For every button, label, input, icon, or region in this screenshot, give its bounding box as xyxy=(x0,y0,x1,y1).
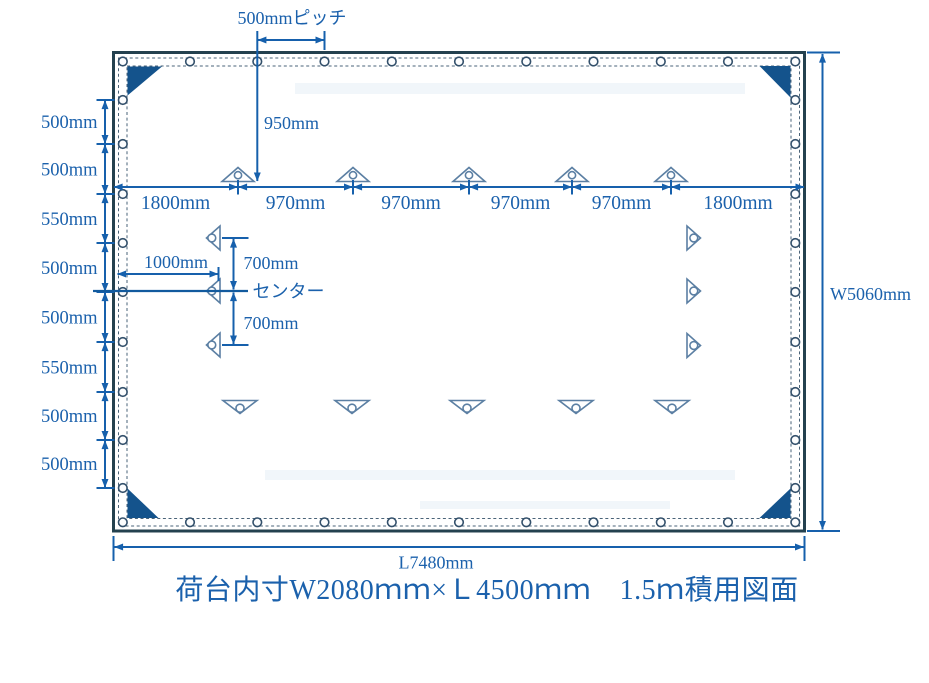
left-chain-label-2: 500mm xyxy=(41,161,98,181)
grommet xyxy=(119,140,128,149)
truck-tarp-drawing-page: 500mm 500mm 550mm 500mm 500mm 550mm 500m… xyxy=(0,0,929,683)
truck-tarp-diagram: 500mm 500mm 550mm 500mm 500mm 550mm 500m… xyxy=(0,0,929,683)
grommet xyxy=(791,338,800,347)
grommet xyxy=(320,518,329,527)
grommet xyxy=(791,518,800,527)
grommet xyxy=(724,57,733,66)
right-loop-eyelet xyxy=(690,342,698,350)
left-chain-label-3: 550mm xyxy=(41,210,98,230)
tent-loop-eyelet xyxy=(568,172,575,179)
grommet xyxy=(119,338,128,347)
top-chain-label-5: 970mm xyxy=(592,193,652,214)
top-drop-label: 950mm xyxy=(264,113,319,133)
grommet xyxy=(119,388,128,397)
left-dimension-chain: 500mm 500mm 550mm 500mm 500mm 550mm 500m… xyxy=(41,100,115,488)
overall-length-label: L7480mm xyxy=(399,553,474,573)
grommet xyxy=(791,484,800,493)
grommet xyxy=(791,96,800,105)
top-chain-label-4: 970mm xyxy=(491,193,551,214)
grommet xyxy=(522,518,531,527)
left-loop-eyelet xyxy=(208,341,216,349)
grommet xyxy=(119,96,128,105)
grommet xyxy=(119,436,128,445)
left-loop-eyelet xyxy=(208,234,216,242)
grommet xyxy=(320,57,329,66)
overall-width-dimension: W5060mm xyxy=(807,53,911,532)
grommet xyxy=(186,518,195,527)
grommet xyxy=(119,518,128,527)
grommet xyxy=(455,57,464,66)
grommet xyxy=(791,57,800,66)
corner-reinforcement-bottom-left xyxy=(128,489,159,519)
overall-length-dimension: L7480mm xyxy=(114,536,805,573)
down-loop-eyelet xyxy=(348,404,356,412)
down-loop-eyelet xyxy=(668,404,676,412)
grommet xyxy=(388,518,397,527)
tarp-sheen xyxy=(265,470,735,480)
center-offset-lower-label: 700mm xyxy=(244,313,299,333)
grommet xyxy=(791,388,800,397)
top-chain-label-1: 1800mm xyxy=(141,193,210,214)
grommet xyxy=(455,518,464,527)
grommet-pitch-dimension: 500mmピッチ xyxy=(237,8,346,50)
grommet xyxy=(119,190,128,199)
grommet xyxy=(791,288,800,297)
grommet xyxy=(657,518,666,527)
grommet xyxy=(791,239,800,248)
center-line-group: センター xyxy=(93,282,325,302)
left-chain-label-7: 500mm xyxy=(41,407,98,427)
grommet xyxy=(119,484,128,493)
grommet xyxy=(724,518,733,527)
left-chain-label-4: 500mm xyxy=(41,259,98,279)
top-chain-label-3: 970mm xyxy=(381,193,441,214)
tent-loop-eyelet xyxy=(234,172,241,179)
grommet xyxy=(186,57,195,66)
right-loop-eyelet xyxy=(690,234,698,242)
pitch-label: 500mmピッチ xyxy=(237,8,346,28)
grommet xyxy=(522,57,531,66)
corner-reinforcement-top-right xyxy=(760,66,791,98)
grommet xyxy=(119,57,128,66)
grommet xyxy=(791,436,800,445)
grommet xyxy=(119,239,128,248)
left-chain-label-5: 500mm xyxy=(41,309,98,329)
left-chain-label-1: 500mm xyxy=(41,113,98,133)
top-chain-label-2: 970mm xyxy=(266,193,326,214)
grommet xyxy=(388,57,397,66)
grommet xyxy=(791,190,800,199)
tarp-sheen xyxy=(295,83,745,94)
tent-loop-eyelet xyxy=(667,172,674,179)
down-loop-eyelet xyxy=(572,404,580,412)
left-chain-label-8: 500mm xyxy=(41,455,98,475)
grommet xyxy=(657,57,666,66)
grommet xyxy=(589,57,598,66)
down-loop-eyelet xyxy=(463,404,471,412)
overall-width-label: W5060mm xyxy=(830,284,911,304)
left-inset-dimension: 1000mm xyxy=(118,252,219,281)
center-label: センター xyxy=(253,282,325,302)
tent-loop-eyelet xyxy=(349,172,356,179)
grommet xyxy=(589,518,598,527)
right-loop-eyelet xyxy=(690,287,698,295)
drawing-title: 荷台内寸W2080ｍｍ×Ｌ4500ｍｍ 1.5ｍ積用図面 xyxy=(175,574,798,606)
down-loop-eyelet xyxy=(236,404,244,412)
corner-reinforcement-bottom-right xyxy=(760,489,791,519)
center-offset-upper-label: 700mm xyxy=(244,253,299,273)
corner-reinforcement-top-left xyxy=(128,67,163,96)
top-chain-label-6: 1800mm xyxy=(703,193,772,214)
grommet xyxy=(791,140,800,149)
left-inset-label: 1000mm xyxy=(144,252,208,272)
left-chain-label-6: 550mm xyxy=(41,359,98,379)
grommet xyxy=(253,518,262,527)
tarp-sheen xyxy=(420,501,670,509)
tent-loop-eyelet xyxy=(465,172,472,179)
top-dimension-chain: 1800mm 970mm 970mm 970mm 970mm 1800mm xyxy=(114,180,804,214)
